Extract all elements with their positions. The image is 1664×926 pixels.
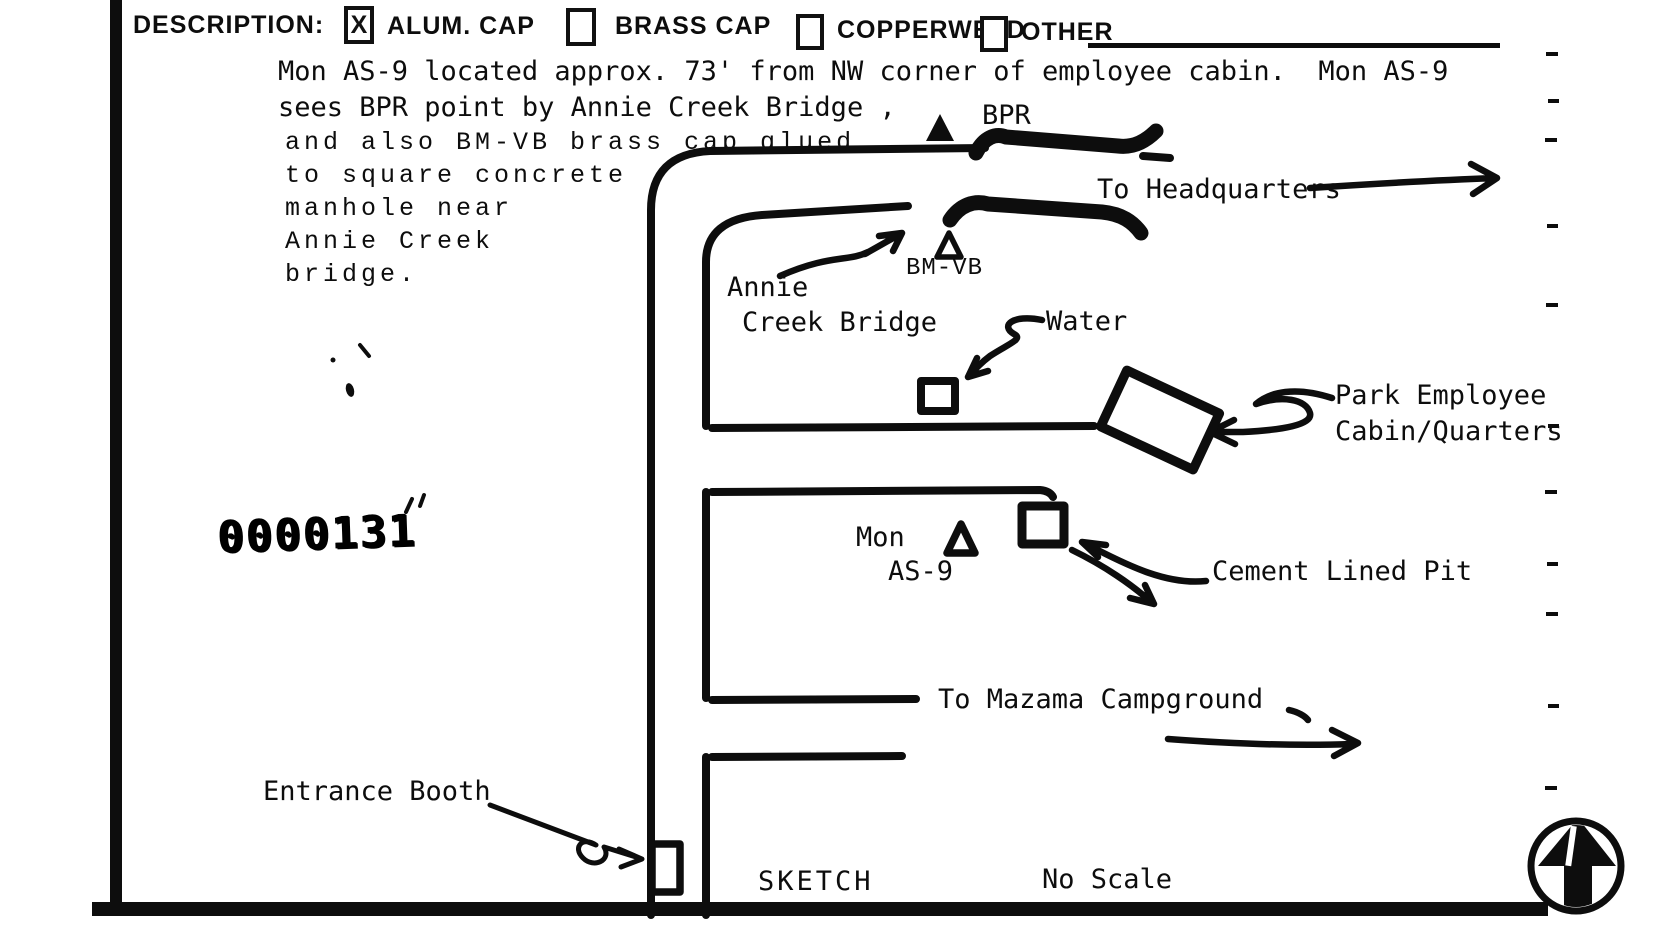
bridge-rail-south xyxy=(950,203,1141,233)
annie-creek-bridge-label-line2: Creek Bridge xyxy=(742,309,937,337)
mazama-arrow-tail xyxy=(1289,710,1308,720)
cabin-road-south-line xyxy=(712,490,1053,497)
bpr-triangle-marker xyxy=(926,114,954,141)
cement-pit-square-marker xyxy=(1022,506,1064,544)
no-scale-label: No Scale xyxy=(1042,866,1172,894)
note-col-line-4: Annie Creek xyxy=(285,229,494,255)
checkbox-brass-cap[interactable] xyxy=(566,8,596,46)
page-number-stamp: 0000131 xyxy=(217,509,418,562)
bm-vb-label: BM-VB xyxy=(906,256,983,281)
cabin-road-north-line xyxy=(712,426,1094,428)
scanned-monument-description-form: DESCRIPTION: X ALUM. CAP BRASS CAP COPPE… xyxy=(0,0,1664,926)
entrance-booth-label: Entrance Booth xyxy=(263,778,491,806)
park-employee-label-line2: Cabin/Quarters xyxy=(1335,418,1563,446)
mazama-road-north-line xyxy=(712,699,916,700)
bpr-label: BPR xyxy=(982,102,1031,130)
checkbox-other[interactable] xyxy=(980,16,1008,52)
annie-bridge-arrow xyxy=(780,233,902,276)
note-line-2: sees BPR point by Annie Creek Bridge , xyxy=(278,94,896,122)
checkbox-alum-cap[interactable]: X xyxy=(344,6,374,44)
mazama-road-south-line xyxy=(712,756,902,757)
cabin-rect xyxy=(1101,370,1220,469)
park-employee-label-line1: Park Employee xyxy=(1335,382,1546,410)
entrance-booth-arrow xyxy=(490,805,642,867)
note-col-line-2: to square concrete xyxy=(285,163,627,189)
cement-pit-arrow-b xyxy=(1072,550,1154,604)
to-mazama-campground-label: To Mazama Campground xyxy=(938,686,1263,714)
bridge-rail-north xyxy=(976,131,1156,153)
checkbox-other-label: OTHER xyxy=(1021,19,1114,45)
north-arrow-icon xyxy=(1531,818,1621,914)
other-blank-line xyxy=(1088,43,1500,48)
to-mazama-arrow xyxy=(1168,730,1358,756)
water-square-marker xyxy=(921,381,955,411)
cabin-arrow xyxy=(1210,391,1332,444)
road-top-east-dash xyxy=(1143,156,1170,158)
note-col-line-1: and also BM-VB brass cap glued xyxy=(285,130,855,156)
description-label: DESCRIPTION: xyxy=(133,12,324,38)
as9-label: AS-9 xyxy=(888,558,953,586)
checkbox-brass-cap-label: BRASS CAP xyxy=(615,13,771,39)
checkbox-alum-cap-mark: X xyxy=(351,11,368,39)
checkbox-copperweld[interactable] xyxy=(796,14,824,50)
left-border xyxy=(110,0,122,914)
sketch-caption: SKETCH xyxy=(758,868,874,896)
cement-pit-arrow-a xyxy=(1082,542,1206,582)
entrance-booth-rect xyxy=(652,844,680,892)
note-line-1: Mon AS-9 located approx. 73' from NW cor… xyxy=(278,58,1448,86)
note-col-line-3: manhole near xyxy=(285,196,513,222)
to-headquarters-label: To Headquarters xyxy=(1097,176,1341,204)
cement-lined-pit-label: Cement Lined Pit xyxy=(1212,558,1472,586)
mon-label: Mon xyxy=(856,524,905,552)
water-arrow xyxy=(968,318,1042,377)
ink-specks xyxy=(331,345,425,512)
annie-creek-bridge-label-line1: Annie xyxy=(727,274,808,302)
checkbox-alum-cap-label: ALUM. CAP xyxy=(387,13,535,39)
bottom-border xyxy=(92,902,1548,916)
note-col-line-5: bridge. xyxy=(285,262,418,288)
bm-vb-triangle-marker xyxy=(937,233,961,257)
water-label: Water xyxy=(1046,308,1127,336)
mon-as9-triangle-marker xyxy=(947,524,975,553)
